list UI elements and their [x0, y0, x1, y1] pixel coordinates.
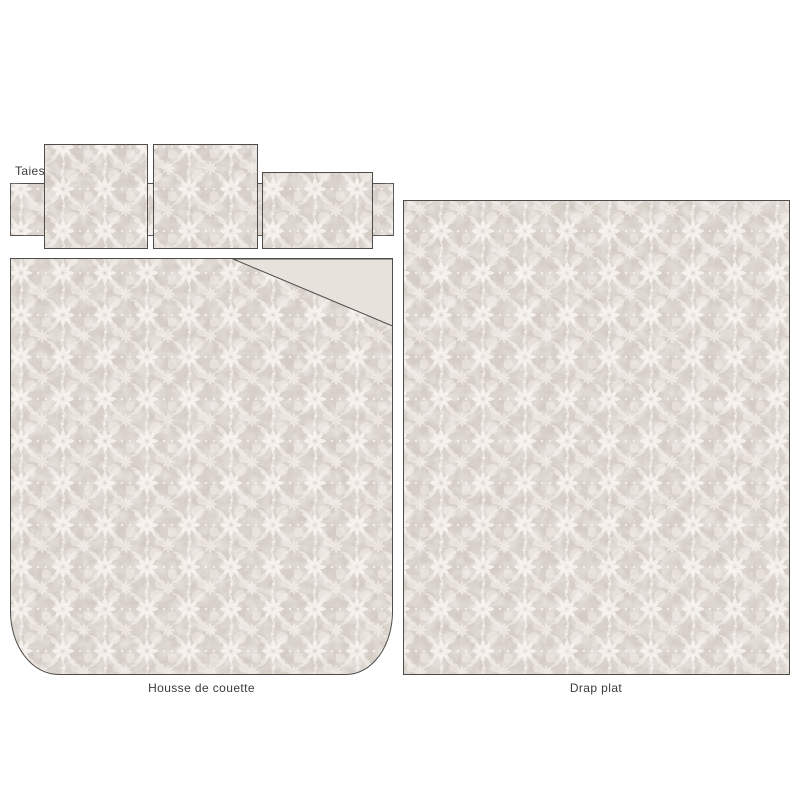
fabric-texture-overlay [0, 0, 800, 800]
bedding-set-diagram: Taies Housse de couette Drap plat [0, 0, 800, 800]
bedding-pieces-graphic [0, 0, 800, 800]
duvet-cover-label: Housse de couette [10, 681, 393, 695]
flat-sheet-label: Drap plat [403, 681, 789, 695]
pillowcases-label: Taies [15, 164, 45, 178]
